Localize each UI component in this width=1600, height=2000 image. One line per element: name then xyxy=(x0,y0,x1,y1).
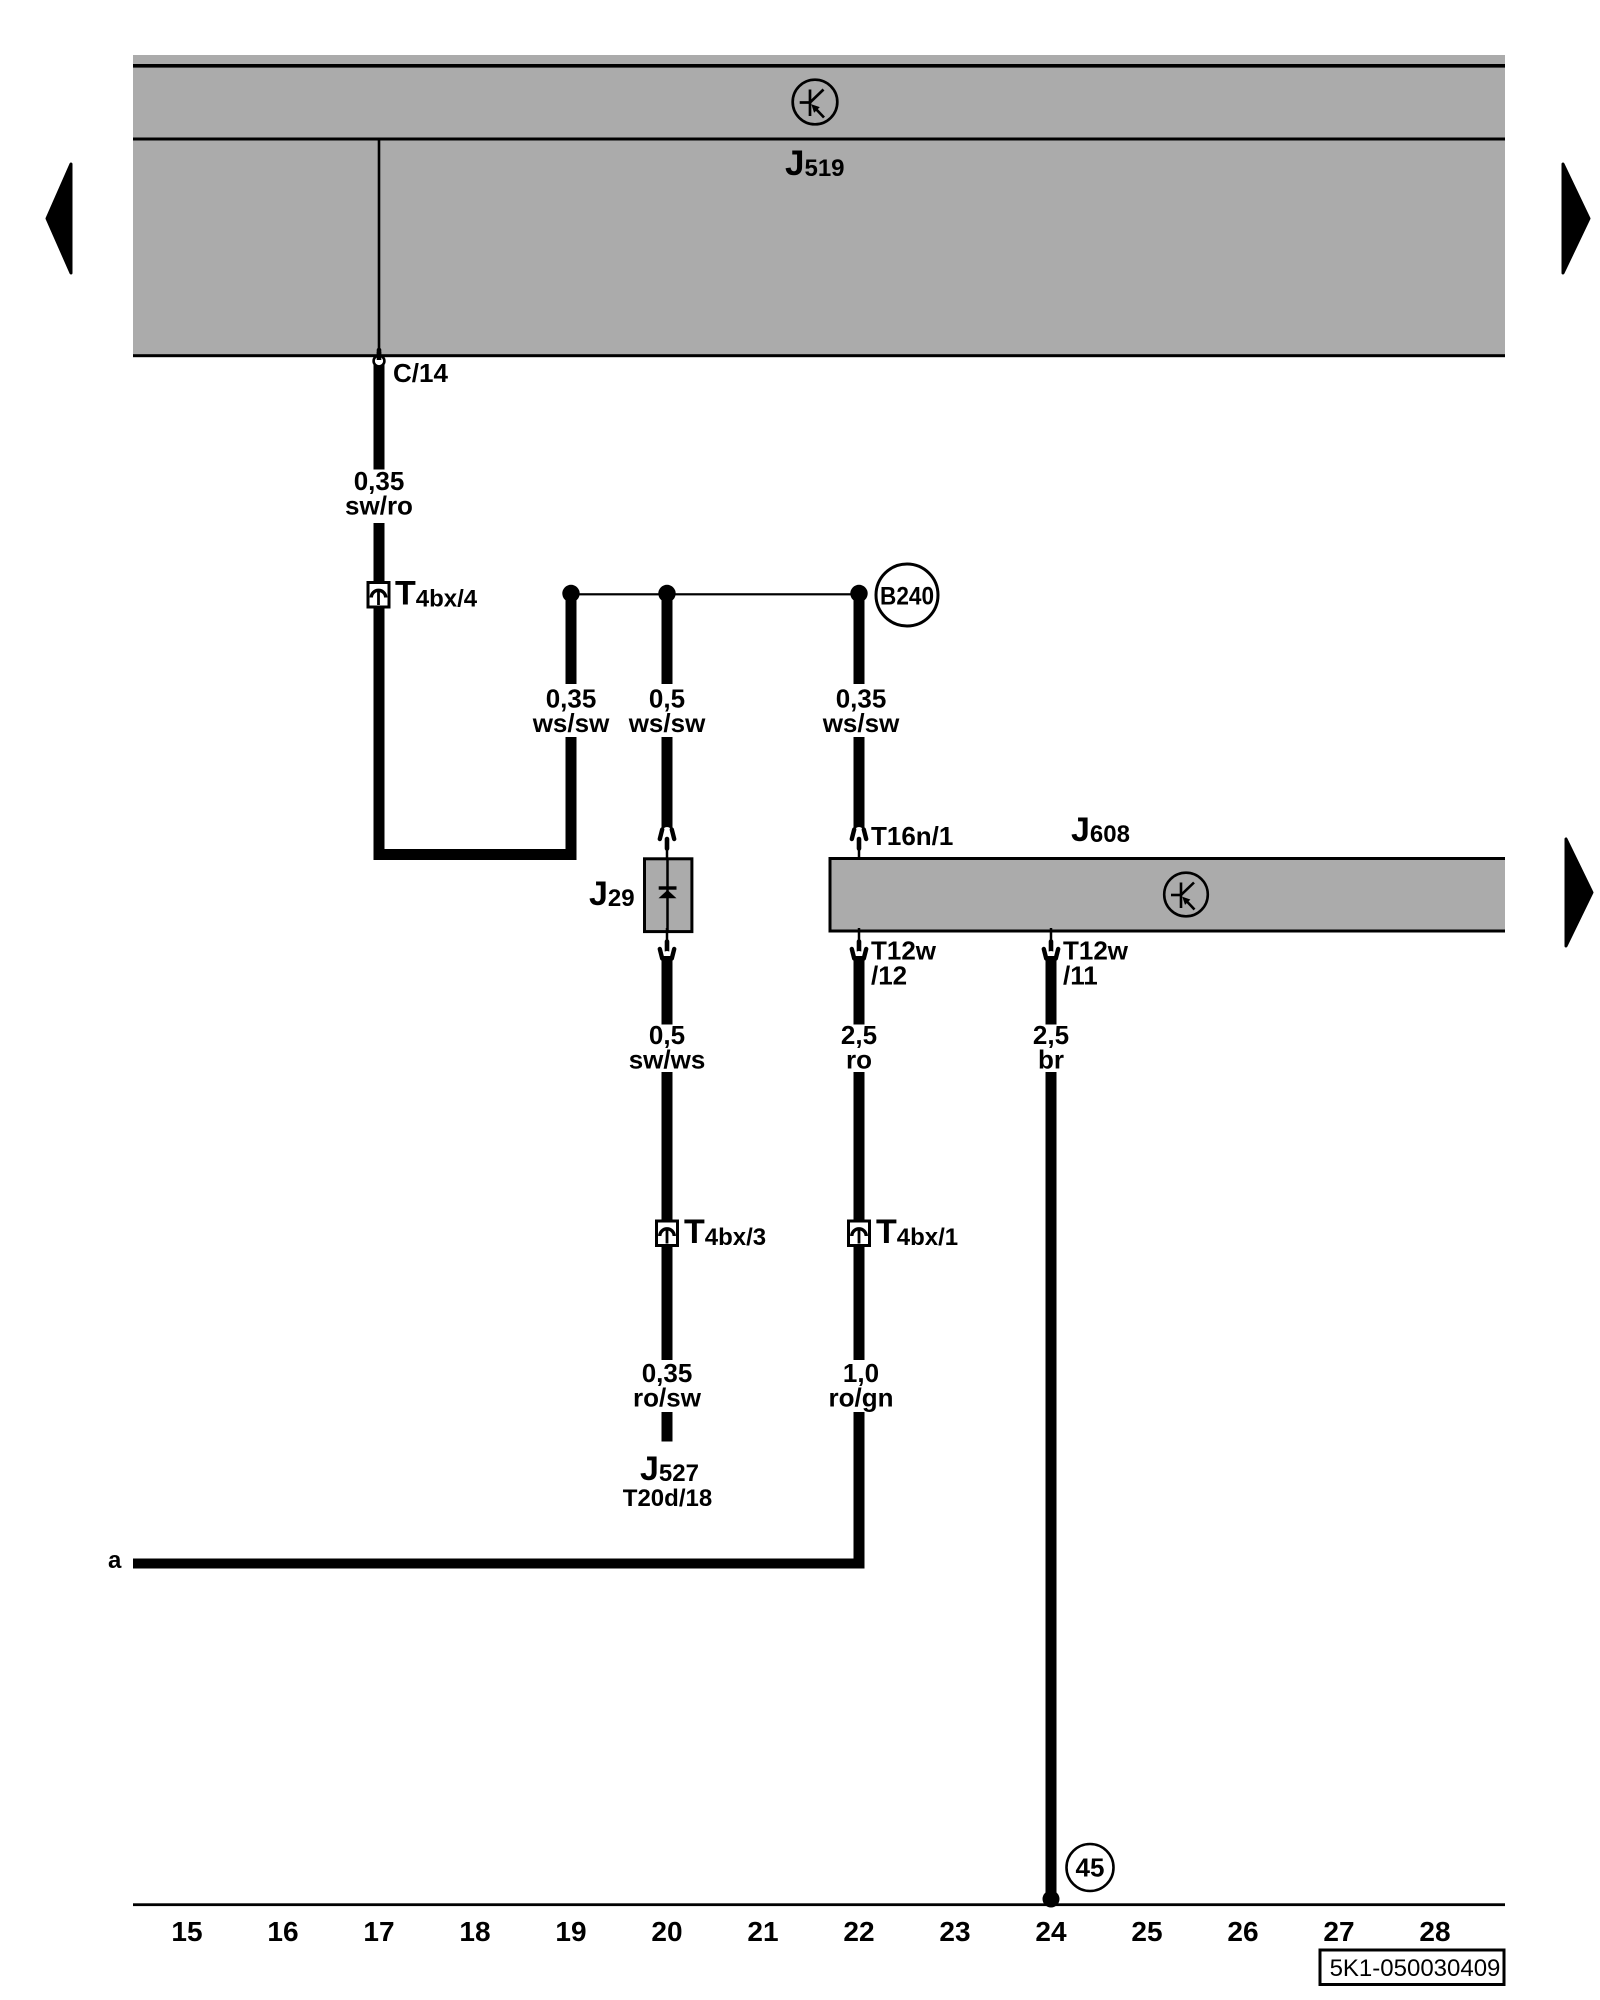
svg-text:26: 26 xyxy=(1227,1916,1258,1947)
svg-text:5K1-050030409: 5K1-050030409 xyxy=(1330,1955,1501,1982)
svg-text:T16n/1: T16n/1 xyxy=(871,821,953,851)
svg-text:28: 28 xyxy=(1419,1916,1450,1947)
svg-text:sw/ro: sw/ro xyxy=(345,491,413,521)
svg-text:16: 16 xyxy=(267,1916,298,1947)
svg-text:/12: /12 xyxy=(871,961,907,991)
svg-text:a: a xyxy=(108,1547,122,1574)
svg-text:C/14: C/14 xyxy=(393,358,448,388)
svg-text:15: 15 xyxy=(171,1916,202,1947)
svg-text:ro/sw: ro/sw xyxy=(633,1383,702,1413)
svg-text:B240: B240 xyxy=(880,583,934,611)
svg-text:/11: /11 xyxy=(1063,961,1098,991)
svg-text:45: 45 xyxy=(1076,1853,1105,1883)
svg-text:17: 17 xyxy=(363,1916,394,1947)
svg-text:ws/sw: ws/sw xyxy=(532,708,610,738)
svg-text:sw/ws: sw/ws xyxy=(629,1045,706,1075)
svg-text:19: 19 xyxy=(555,1916,586,1947)
svg-text:20: 20 xyxy=(651,1916,682,1947)
svg-text:ws/sw: ws/sw xyxy=(628,708,706,738)
svg-text:18: 18 xyxy=(459,1916,490,1947)
svg-text:T20d/18: T20d/18 xyxy=(623,1485,712,1512)
svg-text:ro/gn: ro/gn xyxy=(829,1383,894,1413)
svg-text:21: 21 xyxy=(747,1916,778,1947)
svg-text:24: 24 xyxy=(1035,1916,1067,1947)
svg-text:ro: ro xyxy=(846,1045,872,1075)
svg-text:ws/sw: ws/sw xyxy=(822,708,900,738)
svg-text:br: br xyxy=(1038,1045,1064,1075)
svg-text:23: 23 xyxy=(939,1916,970,1947)
svg-text:25: 25 xyxy=(1131,1916,1162,1947)
svg-text:22: 22 xyxy=(843,1916,874,1947)
svg-text:27: 27 xyxy=(1323,1916,1354,1947)
